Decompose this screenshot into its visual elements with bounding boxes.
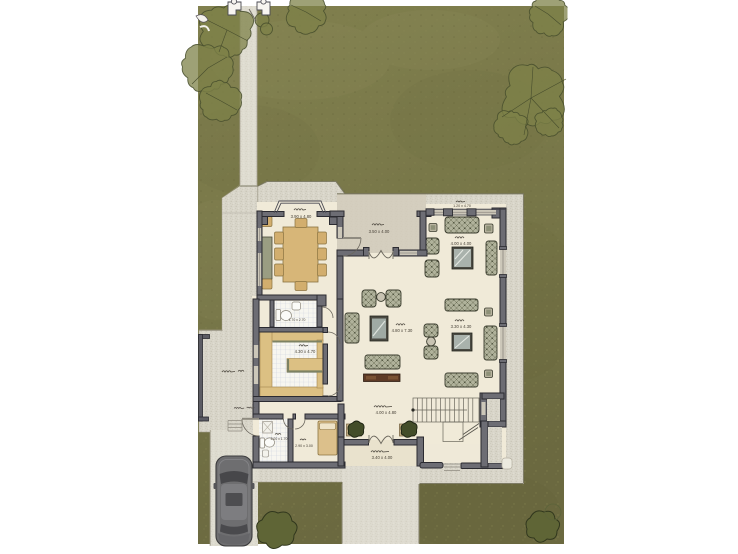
svg-text:4.80 x 7.30: 4.80 x 7.30 — [392, 328, 413, 333]
svg-text:4.00 x 4.00: 4.00 x 4.00 — [451, 241, 472, 246]
svg-text:3.50 x 4.00: 3.50 x 4.00 — [369, 229, 390, 234]
svg-text:2.90 x 3.00: 2.90 x 3.00 — [295, 444, 313, 448]
svg-text:3.30 x 4.30: 3.30 x 4.30 — [451, 324, 472, 329]
svg-text:4.00 x 4.80: 4.00 x 4.80 — [376, 410, 397, 415]
svg-text:1.20 x 4.70: 1.20 x 4.70 — [453, 204, 471, 208]
svg-text:3.90 x 4.80: 3.90 x 4.80 — [291, 214, 312, 219]
svg-text:1.70 x 2.70: 1.70 x 2.70 — [289, 318, 306, 322]
svg-text:2.00 x 1.70: 2.00 x 1.70 — [271, 437, 288, 441]
svg-text:3.40 x 4.00: 3.40 x 4.00 — [372, 455, 393, 460]
svg-text:4.30 x 4.70: 4.30 x 4.70 — [295, 349, 316, 354]
